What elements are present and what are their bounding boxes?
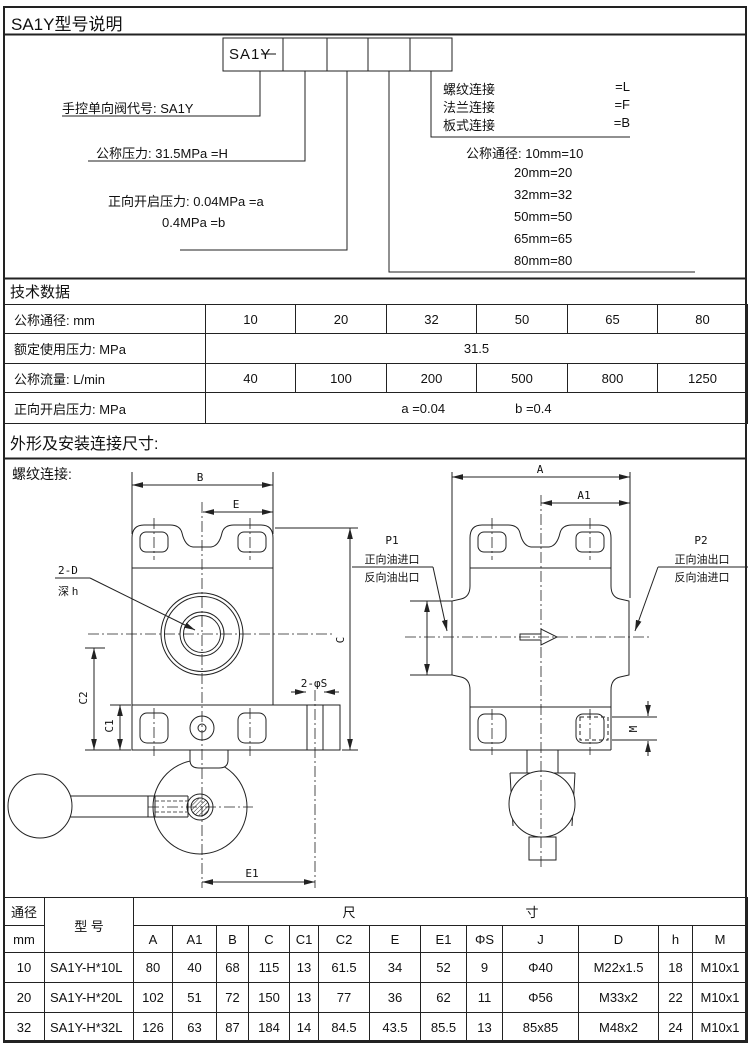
dim-cell: 61.5 xyxy=(319,953,370,983)
dim-cell: 77 xyxy=(319,983,370,1013)
tech-row-label: 公称通径: mm xyxy=(4,305,206,334)
model-header: 型 号 xyxy=(45,898,134,953)
dim-label-e1: E1 xyxy=(245,867,258,880)
tech-cell: 100 xyxy=(296,364,387,393)
diameter-first: 公称通径: 10mm=10 xyxy=(466,143,583,162)
connection-code: =B xyxy=(614,115,630,133)
dim-cell: 68 xyxy=(217,953,249,983)
diameter-item: 65mm=65 xyxy=(514,231,572,253)
dim-cell: Φ40 xyxy=(503,953,579,983)
dim-cell: 85x85 xyxy=(503,1013,579,1043)
dim-cell: 150 xyxy=(249,983,290,1013)
col-header: E xyxy=(370,926,421,953)
tech-cell: 10 xyxy=(206,305,296,334)
col-header: C xyxy=(249,926,290,953)
dim-cell: 22 xyxy=(659,983,693,1013)
dim-cell: 51 xyxy=(173,983,217,1013)
col-header: M xyxy=(693,926,748,953)
table-row: 10 SA1Y-H*10L 80 40 68 115 13 61.5 34 52… xyxy=(4,953,748,983)
tech-cell-span: 31.5 xyxy=(206,334,748,364)
port1-line2: 反向油出口 xyxy=(365,570,420,584)
right-view-dimensions xyxy=(352,472,748,756)
dim-cell: 85.5 xyxy=(421,1013,467,1043)
dim-cell: 13 xyxy=(290,953,319,983)
diameter-item: 50mm=50 xyxy=(514,209,572,231)
dim-cell: M22x1.5 xyxy=(579,953,659,983)
dn-value: 20 xyxy=(4,983,45,1013)
connection-item: 螺纹连接 =L xyxy=(443,79,630,97)
port2-line2: 反向油进口 xyxy=(675,570,730,584)
tech-data-table: 公称通径: mm 10 20 32 50 65 80 额定使用压力: MPa 3… xyxy=(3,304,748,424)
dim-cell: 13 xyxy=(467,1013,503,1043)
dim-label-bore-depth: 深 h xyxy=(58,585,78,598)
col-header: B xyxy=(217,926,249,953)
dn-unit: mm xyxy=(4,926,45,953)
dim-cell: 40 xyxy=(173,953,217,983)
handle-ball xyxy=(8,774,72,838)
col-header: C1 xyxy=(290,926,319,953)
dn-value: 32 xyxy=(4,1013,45,1043)
left-view-dim-labels: B E C C2 C1 E1 2-φS 2-D 深 h xyxy=(58,471,347,880)
dim-cell: 34 xyxy=(370,953,421,983)
dim-label-c: C xyxy=(334,637,347,644)
col-header: C2 xyxy=(319,926,370,953)
connection-code: =L xyxy=(615,79,630,97)
tech-cell: 500 xyxy=(477,364,568,393)
dim-cell: M33x2 xyxy=(579,983,659,1013)
tech-cell: 20 xyxy=(296,305,387,334)
tech-row-label: 公称流量: L/min xyxy=(4,364,206,393)
page-border xyxy=(4,7,746,1041)
right-view-outline xyxy=(452,525,629,860)
connection-item: 法兰连接 =F xyxy=(443,97,630,115)
left-view-handle xyxy=(8,750,247,854)
tech-row-label: 正向开启压力: MPa xyxy=(4,393,206,424)
handle-ball-end xyxy=(509,771,575,837)
dim-cell: 87 xyxy=(217,1013,249,1043)
dim-cell: M10x1 xyxy=(693,1013,748,1043)
tech-cell: 80 xyxy=(658,305,748,334)
port1-line1: 正向油进口 xyxy=(365,552,420,566)
size-header: 尺 寸 xyxy=(134,898,748,926)
dim-cell: 84.5 xyxy=(319,1013,370,1043)
col-header: A xyxy=(134,926,173,953)
dim-cell: Φ56 xyxy=(503,983,579,1013)
left-view-centerlines xyxy=(88,502,332,888)
page-title: SA1Y型号说明 xyxy=(11,10,122,35)
dim-label-a1: A1 xyxy=(577,489,590,502)
left-view-outline xyxy=(132,525,340,750)
dim-cell: 115 xyxy=(249,953,290,983)
dim-cell: 62 xyxy=(421,983,467,1013)
col-header: ΦS xyxy=(467,926,503,953)
dim-cell: 72 xyxy=(217,983,249,1013)
tech-section-title: 技术数据 xyxy=(10,281,70,302)
diameter-item: 80mm=80 xyxy=(514,253,572,275)
col-header: J xyxy=(503,926,579,953)
dim-cell: 14 xyxy=(290,1013,319,1043)
dim-label-b: B xyxy=(197,471,204,484)
table-row: 32 SA1Y-H*32L 126 63 87 184 14 84.5 43.5… xyxy=(4,1013,748,1043)
tech-cell: 65 xyxy=(568,305,658,334)
dim-cell: 9 xyxy=(467,953,503,983)
open-pressure-a: a =0.04 xyxy=(401,401,445,416)
connection-label: 螺纹连接 xyxy=(443,79,495,97)
col-header: D xyxy=(579,926,659,953)
dim-cell: 63 xyxy=(173,1013,217,1043)
tech-cell: 1250 xyxy=(658,364,748,393)
dim-cell: 43.5 xyxy=(370,1013,421,1043)
dimension-table: 通径 型 号 尺 寸 mm A A1 B C C1 C2 E E1 ΦS J D… xyxy=(3,897,748,1043)
connection-code: =F xyxy=(614,97,630,115)
dn-value: 10 xyxy=(4,953,45,983)
dim-cell: M10x1 xyxy=(693,953,748,983)
table-row: 20 SA1Y-H*20L 102 51 72 150 13 77 36 62 … xyxy=(4,983,748,1013)
tech-cell: 40 xyxy=(206,364,296,393)
dim-cell: 11 xyxy=(467,983,503,1013)
dim-cell: 184 xyxy=(249,1013,290,1043)
size-header-right: 寸 xyxy=(526,902,539,921)
tech-cell-span: a =0.04 b =0.4 xyxy=(206,393,748,424)
outline-section-title: 外形及安装连接尺寸: xyxy=(10,430,158,454)
dim-cell: 36 xyxy=(370,983,421,1013)
dim-label-c2: C2 xyxy=(77,691,90,704)
dim-cell: 24 xyxy=(659,1013,693,1043)
diameter-item: 32mm=32 xyxy=(514,187,572,209)
connection-label: 法兰连接 xyxy=(443,97,495,115)
open-pressure-label-a: 正向开启压力: 0.04MPa =a xyxy=(108,191,264,210)
diameter-item: 20mm=20 xyxy=(514,165,572,187)
dim-cell: M10x1 xyxy=(693,983,748,1013)
open-pressure-label-b: 0.4MPa =b xyxy=(162,215,225,230)
dim-cell: 52 xyxy=(421,953,467,983)
valve-code-label: 手控单向阀代号: SA1Y xyxy=(62,98,193,117)
col-header: A1 xyxy=(173,926,217,953)
dim-cell: 13 xyxy=(290,983,319,1013)
dim-cell: 126 xyxy=(134,1013,173,1043)
model-value: SA1Y-H*32L xyxy=(45,1013,134,1043)
dim-label-a: A xyxy=(537,463,544,476)
port1-name: P1 xyxy=(385,534,398,547)
dim-label-c1: C1 xyxy=(103,719,116,732)
col-header: E1 xyxy=(421,926,467,953)
diameter-list: 20mm=20 32mm=32 50mm=50 65mm=65 80mm=80 xyxy=(514,165,572,275)
connection-list: 螺纹连接 =L 法兰连接 =F 板式连接 =B xyxy=(443,79,630,133)
dim-label-bore: 2-D xyxy=(58,564,78,577)
tech-row-label: 额定使用压力: MPa xyxy=(4,334,206,364)
dim-cell: 80 xyxy=(134,953,173,983)
dim-label-m: M xyxy=(627,725,640,732)
model-value: SA1Y-H*10L xyxy=(45,953,134,983)
datasheet-page: B E C C2 C1 E1 2-φS 2-D 深 h xyxy=(0,0,750,1043)
connection-type-subtitle: 螺纹连接: xyxy=(12,464,72,484)
tech-cell: 50 xyxy=(477,305,568,334)
port2-name: P2 xyxy=(694,534,707,547)
connection-label: 板式连接 xyxy=(443,115,495,133)
tech-cell: 32 xyxy=(387,305,477,334)
dn-header: 通径 xyxy=(4,898,45,926)
tech-cell: 200 xyxy=(387,364,477,393)
dim-cell: 18 xyxy=(659,953,693,983)
connection-item: 板式连接 =B xyxy=(443,115,630,133)
pressure-label: 公称压力: 31.5MPa =H xyxy=(96,143,228,162)
model-code-dash: — xyxy=(261,45,277,62)
col-header: h xyxy=(659,926,693,953)
model-value: SA1Y-H*20L xyxy=(45,983,134,1013)
dim-cell: M48x2 xyxy=(579,1013,659,1043)
port2-line1: 正向油出口 xyxy=(675,552,730,566)
open-pressure-b: b =0.4 xyxy=(515,401,552,416)
dim-label-e: E xyxy=(233,498,240,511)
dim-label-holes: 2-φS xyxy=(301,677,328,690)
dim-cell: 102 xyxy=(134,983,173,1013)
size-header-left: 尺 xyxy=(342,902,355,921)
tech-cell: 800 xyxy=(568,364,658,393)
